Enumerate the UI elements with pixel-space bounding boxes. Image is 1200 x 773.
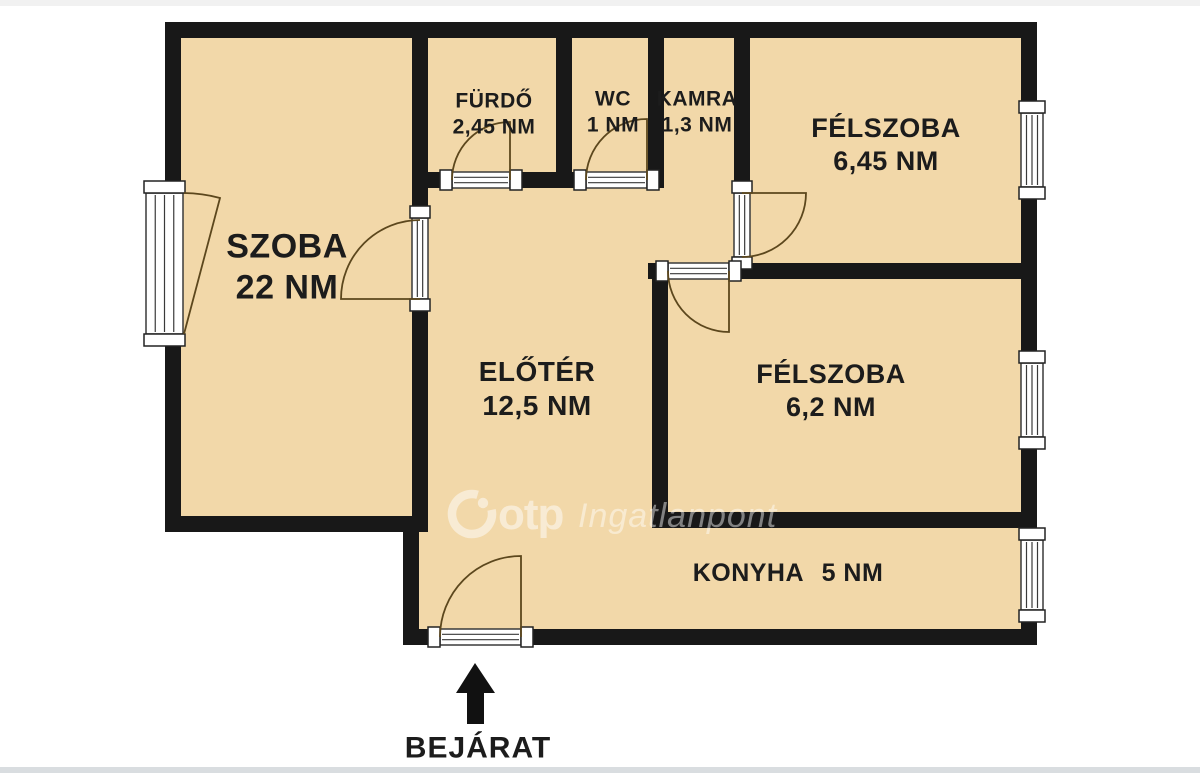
entrance-arrow-icon [456, 663, 495, 724]
watermark-suffix: Ingatlanpont [578, 497, 778, 535]
top-edge-strip [0, 0, 1200, 6]
room-area: 12,5 NM [479, 389, 596, 423]
room-name: KONYHA [693, 559, 803, 587]
room-area: 5 NM [822, 559, 884, 587]
room-name: WC [587, 86, 639, 112]
room-area: 1 NM [587, 112, 639, 138]
room-area: 6,45 NM [811, 145, 961, 178]
entrance-door-frame [428, 627, 533, 647]
room-label-felszoba-62: FÉLSZOBA 6,2 NM [756, 358, 906, 424]
room-area: 1,3 NM [657, 112, 738, 138]
room-label-wc: WC 1 NM [587, 86, 639, 137]
room-area: 6,2 NM [756, 391, 906, 424]
room-name: ELŐTÉR [479, 355, 596, 389]
watermark-brand: otp [498, 490, 564, 539]
room-label-felszoba-645: FÉLSZOBA 6,45 NM [811, 112, 961, 178]
watermark: otp Ingatlanpont [448, 490, 777, 539]
room-label-konyha: KONYHA 5 NM [693, 558, 884, 589]
szoba-door-frame [410, 206, 430, 311]
room-name: FÜRDŐ [453, 88, 536, 114]
room-label-furdo: FÜRDŐ 2,45 NM [453, 88, 536, 139]
room-label-kamra: KAMRA 1,3 NM [657, 86, 738, 137]
room-name: SZOBA [226, 227, 348, 268]
szoba-window [144, 181, 185, 346]
room-label-eloter: ELŐTÉR 12,5 NM [479, 355, 596, 423]
room-area: 2,45 NM [453, 114, 536, 140]
room-name: KAMRA [657, 86, 738, 112]
room-area: 22 NM [226, 268, 348, 309]
bottom-edge-strip [0, 767, 1200, 773]
felszoba645-window [1019, 101, 1045, 199]
felszoba62-window [1019, 351, 1045, 449]
room-name: FÉLSZOBA [756, 358, 906, 391]
konyha-window [1019, 528, 1045, 622]
room-label-szoba: SZOBA 22 NM [226, 227, 348, 310]
floorplan-page: otp Ingatlanpont SZOBA 22 NM FÜRDŐ 2,45 … [0, 0, 1200, 773]
entrance-label: BEJÁRAT [405, 731, 551, 768]
room-name: FÉLSZOBA [811, 112, 961, 145]
